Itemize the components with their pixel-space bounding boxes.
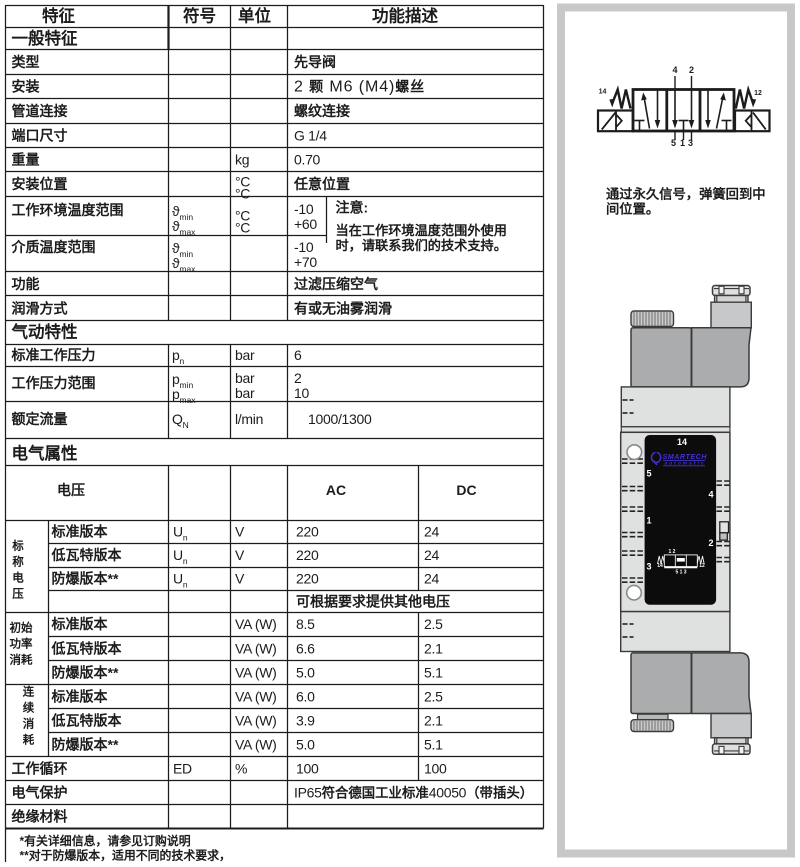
svg-text:功率: 功率 <box>10 637 33 651</box>
svg-text:ED: ED <box>173 761 192 777</box>
svg-text:低瓦特版本: 低瓦特版本 <box>51 713 123 729</box>
svg-text:6.0: 6.0 <box>296 689 315 705</box>
svg-text:bar: bar <box>235 385 255 401</box>
svg-text:5: 5 <box>646 469 651 479</box>
svg-text:6.6: 6.6 <box>296 641 315 657</box>
svg-text:可根据要求提供其他电压: 可根据要求提供其他电压 <box>296 594 450 610</box>
svg-text:功能描述: 功能描述 <box>372 6 439 26</box>
svg-text:注意:: 注意: <box>336 200 369 216</box>
svg-text:电压: 电压 <box>57 482 85 498</box>
svg-text:12: 12 <box>699 563 705 569</box>
svg-text:14: 14 <box>657 563 663 569</box>
svg-text:VA (W): VA (W) <box>235 713 277 729</box>
svg-text:单位: 单位 <box>238 6 272 26</box>
svg-text:称: 称 <box>12 555 24 569</box>
svg-text:标准版本: 标准版本 <box>51 524 109 540</box>
svg-text:SMARTECH: SMARTECH <box>663 452 708 461</box>
svg-text:2.1: 2.1 <box>424 641 443 657</box>
svg-text:有或无油雾润滑: 有或无油雾润滑 <box>294 301 392 317</box>
svg-text:DC: DC <box>456 482 476 498</box>
svg-text:2 颗 M6 (M4)螺丝: 2 颗 M6 (M4)螺丝 <box>294 79 425 96</box>
svg-text:5: 5 <box>671 138 676 148</box>
svg-text:润滑方式: 润滑方式 <box>12 301 68 317</box>
svg-text:*有关详细信息，请参见订购说明: *有关详细信息，请参见订购说明 <box>20 834 191 848</box>
svg-text:消耗: 消耗 <box>10 653 33 667</box>
svg-text:标: 标 <box>11 539 24 553</box>
svg-text:2: 2 <box>708 538 713 548</box>
svg-text:3.9: 3.9 <box>296 713 315 729</box>
svg-text:V: V <box>235 571 245 587</box>
svg-text:kg: kg <box>235 152 249 168</box>
svg-text:2: 2 <box>689 65 694 75</box>
svg-text:安装位置: 安装位置 <box>12 176 68 192</box>
svg-text:电气保护: 电气保护 <box>12 785 68 801</box>
svg-text:1: 1 <box>646 516 651 526</box>
svg-text:2.5: 2.5 <box>424 616 443 632</box>
svg-text:符号: 符号 <box>183 6 216 26</box>
svg-text:低瓦特版本: 低瓦特版本 <box>51 641 123 657</box>
svg-text:220: 220 <box>296 547 319 563</box>
svg-text:+70: +70 <box>294 254 317 270</box>
svg-text:1: 1 <box>680 138 685 148</box>
svg-text:类型: 类型 <box>12 54 40 70</box>
svg-text:%: % <box>235 761 247 777</box>
svg-text:24: 24 <box>424 571 439 587</box>
svg-text:工作环境温度范围: 工作环境温度范围 <box>12 202 124 218</box>
svg-text:标准版本: 标准版本 <box>51 616 109 632</box>
svg-text:任意位置: 任意位置 <box>293 176 350 192</box>
svg-text:V: V <box>235 547 245 563</box>
svg-text:绝缘材料: 绝缘材料 <box>12 809 68 825</box>
svg-text:+60: +60 <box>294 216 317 232</box>
svg-text:6: 6 <box>294 347 302 363</box>
svg-text:14: 14 <box>677 437 687 447</box>
svg-text:防爆版本**: 防爆版本** <box>52 571 119 587</box>
svg-text:通过永久信号，弹簧回到中: 通过永久信号，弹簧回到中 <box>606 186 766 202</box>
svg-text:4: 4 <box>708 490 713 500</box>
svg-text:电气属性: 电气属性 <box>12 443 78 463</box>
svg-text:VA (W): VA (W) <box>235 616 277 632</box>
svg-text:100: 100 <box>424 761 447 777</box>
svg-text:工作压力范围: 工作压力范围 <box>12 375 96 391</box>
svg-text:G 1/4: G 1/4 <box>294 128 327 144</box>
svg-text:-10: -10 <box>294 201 314 217</box>
svg-text:1 2: 1 2 <box>669 549 676 555</box>
svg-text:10: 10 <box>294 385 309 401</box>
svg-text:气动特性: 气动特性 <box>11 322 78 342</box>
svg-text:额定流量: 额定流量 <box>12 411 68 427</box>
svg-text:标准工作压力: 标准工作压力 <box>11 347 96 363</box>
svg-text:bar: bar <box>235 370 255 386</box>
svg-text:重量: 重量 <box>12 152 40 168</box>
svg-text:3: 3 <box>688 138 693 148</box>
svg-text:100: 100 <box>296 761 319 777</box>
svg-text:消: 消 <box>23 717 35 731</box>
svg-text:5.1: 5.1 <box>424 665 443 681</box>
svg-text:°C: °C <box>235 220 250 236</box>
svg-text:24: 24 <box>424 524 439 540</box>
svg-text:标准版本: 标准版本 <box>51 689 109 705</box>
svg-text:安装: 安装 <box>12 79 41 95</box>
svg-text:AC: AC <box>326 482 346 498</box>
svg-text:管道连接: 管道连接 <box>12 103 68 119</box>
svg-text:5.0: 5.0 <box>296 665 315 681</box>
svg-text:0.70: 0.70 <box>294 152 321 168</box>
svg-text:电: 电 <box>12 571 24 585</box>
svg-text:低瓦特版本: 低瓦特版本 <box>51 547 123 563</box>
svg-text:2.1: 2.1 <box>424 713 443 729</box>
svg-text:220: 220 <box>296 524 319 540</box>
svg-text:14: 14 <box>599 89 607 96</box>
svg-text:°C: °C <box>235 186 250 202</box>
svg-text:5.0: 5.0 <box>296 737 315 753</box>
svg-text:bar: bar <box>235 347 255 363</box>
svg-text:功能: 功能 <box>12 276 40 292</box>
svg-text:V: V <box>235 524 245 540</box>
svg-text:间位置。: 间位置。 <box>606 201 659 217</box>
svg-text:12: 12 <box>754 90 762 97</box>
svg-text:3: 3 <box>646 562 651 572</box>
svg-text:端口尺寸: 端口尺寸 <box>12 128 68 144</box>
svg-text:VA (W): VA (W) <box>235 641 277 657</box>
svg-text:当在工作环境温度范围外使用: 当在工作环境温度范围外使用 <box>336 222 507 238</box>
svg-text:4: 4 <box>672 65 677 75</box>
svg-text:防爆版本**: 防爆版本** <box>52 737 119 753</box>
svg-text:一般特征: 一般特征 <box>12 28 79 48</box>
svg-text:VA (W): VA (W) <box>235 737 277 753</box>
svg-text:续: 续 <box>23 701 35 715</box>
svg-text:5.1: 5.1 <box>424 737 443 753</box>
svg-text:过滤压缩空气: 过滤压缩空气 <box>294 276 378 292</box>
svg-text:介质温度范围: 介质温度范围 <box>11 239 96 255</box>
svg-text:2.5: 2.5 <box>424 689 443 705</box>
svg-text:螺纹连接: 螺纹连接 <box>294 103 350 119</box>
svg-text:压: 压 <box>12 587 24 601</box>
svg-text:220: 220 <box>296 571 319 587</box>
svg-text:**对于防爆版本，适用不同的技术要求，: **对于防爆版本，适用不同的技术要求， <box>20 849 231 863</box>
svg-text:l/min: l/min <box>235 411 263 427</box>
svg-text:24: 24 <box>424 547 439 563</box>
svg-text:连: 连 <box>23 685 35 699</box>
svg-text:初始: 初始 <box>10 621 33 635</box>
svg-text:时，请联系我们的技术支持。: 时，请联系我们的技术支持。 <box>336 237 507 253</box>
svg-text:2: 2 <box>294 370 302 386</box>
svg-text:-10: -10 <box>294 239 314 255</box>
svg-text:1000/1300: 1000/1300 <box>308 411 372 427</box>
svg-text:耗: 耗 <box>23 733 35 747</box>
svg-text:VA (W): VA (W) <box>235 689 277 705</box>
svg-text:特征: 特征 <box>42 6 76 26</box>
svg-text:工作循环: 工作循环 <box>12 761 68 777</box>
svg-text:8.5: 8.5 <box>296 616 315 632</box>
svg-text:先导阀: 先导阀 <box>294 54 336 70</box>
svg-text:防爆版本**: 防爆版本** <box>52 665 119 681</box>
svg-text:IP65符合德国工业标准40050（带插头）: IP65符合德国工业标准40050（带插头） <box>294 785 533 801</box>
svg-text:5 1 3: 5 1 3 <box>675 570 686 576</box>
svg-text:VA (W): VA (W) <box>235 665 277 681</box>
